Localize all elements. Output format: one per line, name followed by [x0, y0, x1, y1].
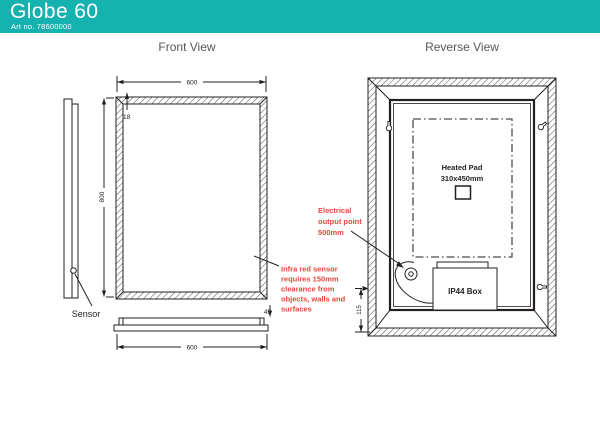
dim-height-label: 800 — [99, 191, 106, 202]
electrical-note-line: 500mm — [318, 228, 344, 237]
electrical-note: Electrical output point 500mm — [318, 206, 362, 237]
ip44-box — [433, 262, 497, 310]
mirror-bottom-view — [114, 318, 268, 331]
infra-red-note-line: surfaces — [281, 305, 312, 314]
technical-drawing: 600 18 800 600 45 Sensor Infra red senso… — [0, 0, 600, 441]
sensor-label: Sensor — [72, 309, 101, 319]
infra-red-note-line: Infra red sensor — [281, 265, 338, 274]
infra-red-note-line: objects, walls and — [281, 295, 346, 304]
infra-red-note-line: clearance from — [281, 285, 335, 294]
heated-pad-label: Heated Pad — [442, 163, 483, 172]
ip44-box-label: IP44 Box — [448, 287, 482, 296]
dim-bottom-width-label: 600 — [187, 345, 198, 352]
dim-frame-thickness-label: 18 — [123, 114, 131, 121]
mirror-front-face — [116, 97, 267, 299]
dim-output-height-label: 115 — [357, 305, 363, 315]
side-profile — [64, 99, 78, 298]
heated-pad-size: 310x450mm — [441, 174, 484, 183]
heated-pad-square — [456, 186, 471, 199]
infra-red-note: Infra red sensor requires 150mm clearanc… — [281, 265, 346, 314]
sensor-dot — [71, 268, 77, 274]
dim-depth-label: 45 — [264, 309, 272, 316]
reverse-view-drawing — [351, 78, 556, 336]
dim-top-width-label: 600 — [187, 80, 198, 87]
electrical-note-line: Electrical — [318, 206, 351, 215]
infra-red-note-line: requires 150mm — [281, 275, 339, 284]
electrical-note-line: output point — [318, 217, 362, 226]
